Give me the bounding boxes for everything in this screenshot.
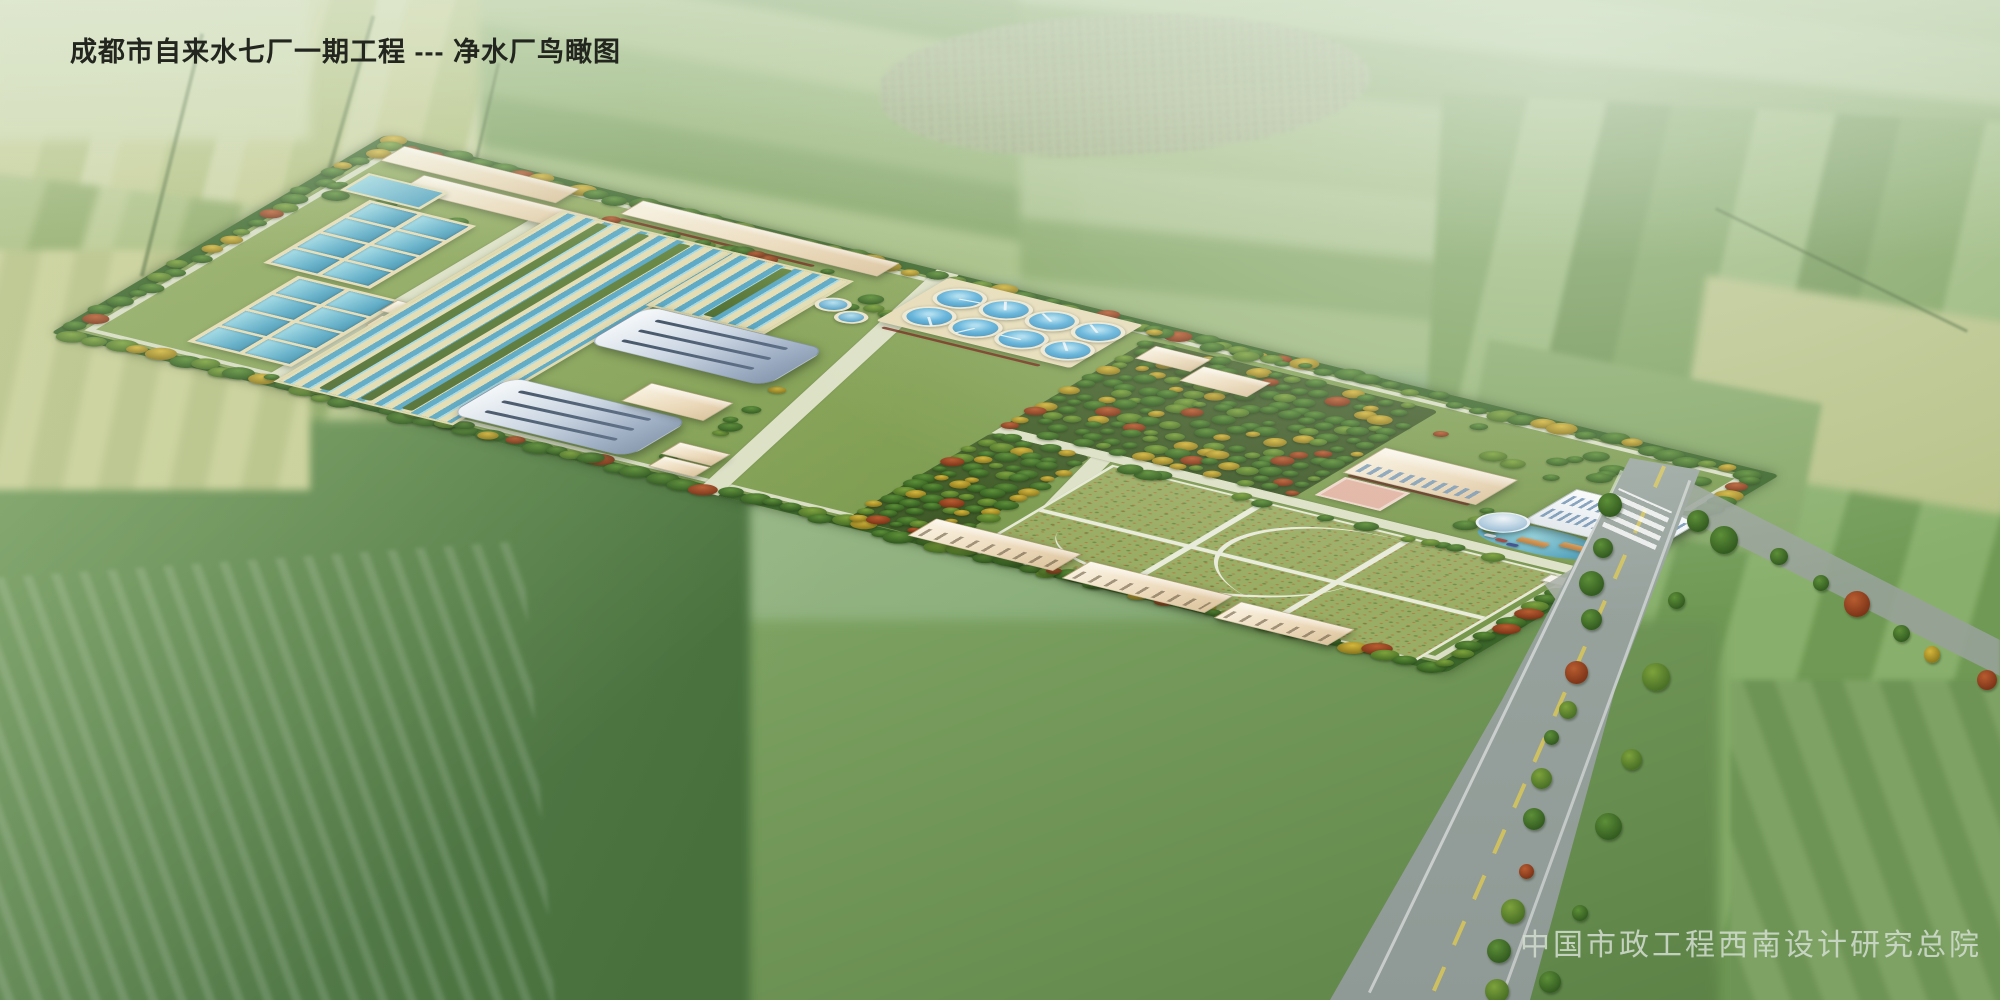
tree (1977, 670, 1997, 690)
tree (1621, 749, 1642, 770)
tree (1539, 971, 1561, 993)
tree (1595, 813, 1622, 840)
tree (1924, 646, 1940, 662)
tree (1581, 609, 1602, 630)
tree (1485, 979, 1509, 1000)
tree (1531, 768, 1552, 789)
tree (1559, 701, 1577, 719)
tree (1710, 526, 1738, 554)
tree (1519, 864, 1534, 879)
tree (1668, 592, 1685, 609)
tree (1523, 808, 1546, 831)
tree (1544, 730, 1559, 745)
tree (1487, 939, 1511, 963)
tree (1893, 625, 1910, 642)
title-caption: 成都市自来水七厂一期工程 --- 净水厂鸟瞰图 (70, 30, 621, 69)
tree (1598, 493, 1622, 517)
tree (1642, 663, 1670, 691)
tree (1844, 591, 1870, 617)
tree (1813, 575, 1829, 591)
tree (1579, 571, 1605, 597)
tree (1770, 548, 1788, 566)
credit-caption: 中国市政工程西南设计研究总院 (1520, 920, 1982, 964)
birdseye-rendering: 成都市自来水七厂一期工程 --- 净水厂鸟瞰图 中国市政工程西南设计研究总院 (0, 0, 2000, 1000)
tree (1565, 661, 1587, 683)
tree (1687, 510, 1709, 532)
roadside-trees (0, 0, 2000, 1000)
tree (1593, 538, 1613, 558)
